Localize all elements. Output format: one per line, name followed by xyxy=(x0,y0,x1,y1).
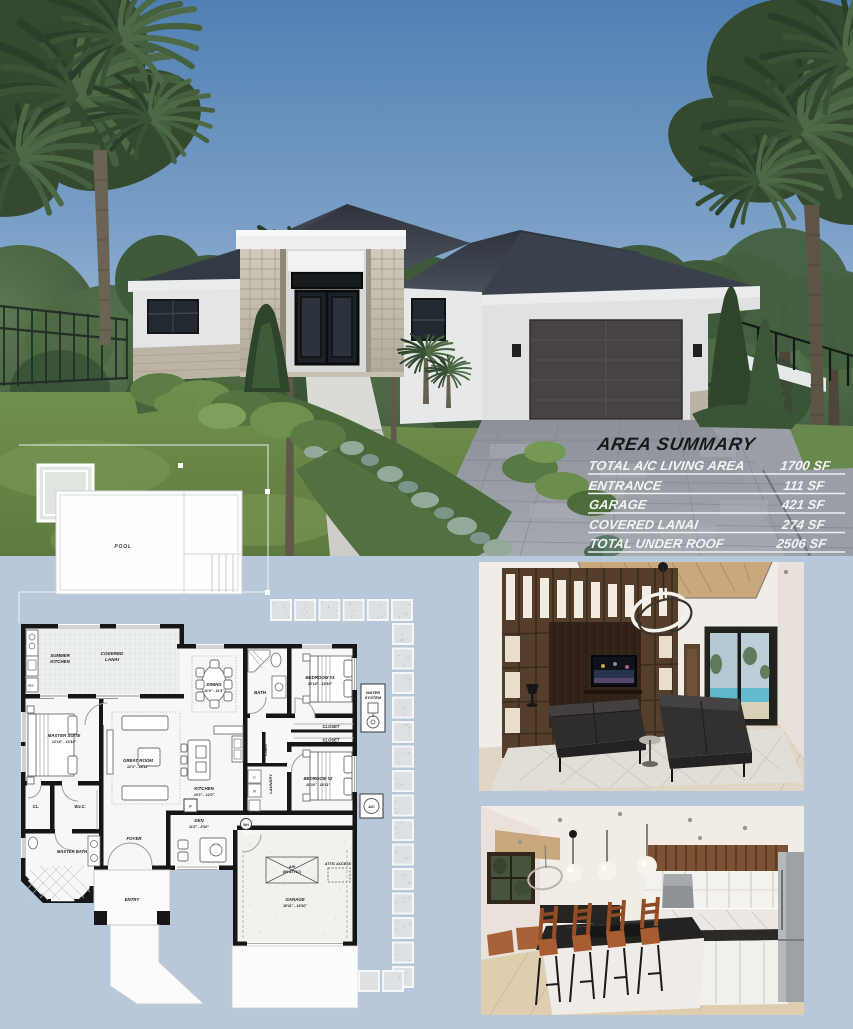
svg-text:KITCHEN: KITCHEN xyxy=(194,786,214,791)
svg-text:BEDROOM #2: BEDROOM #2 xyxy=(303,776,333,781)
svg-text:DINING: DINING xyxy=(206,682,222,687)
svg-text:KITCHEN: KITCHEN xyxy=(50,659,70,664)
svg-text:111 SF: 111 SF xyxy=(783,478,827,493)
svg-text:12'3" - 18'11": 12'3" - 18'11" xyxy=(127,765,149,769)
svg-text:(IN ATTIC): (IN ATTIC) xyxy=(283,870,302,874)
svg-text:LINEN: LINEN xyxy=(264,744,268,756)
svg-text:COVERED: COVERED xyxy=(101,651,124,656)
svg-text:POOL: POOL xyxy=(114,544,131,550)
svg-text:11'0" - 11'3": 11'0" - 11'3" xyxy=(204,689,224,693)
svg-text:TOTAL UNDER ROOF: TOTAL UNDER ROOF xyxy=(589,536,726,551)
svg-text:10'10" - 10'10": 10'10" - 10'10" xyxy=(308,682,333,686)
svg-text:11'2" - 8'10": 11'2" - 8'10" xyxy=(189,825,209,829)
svg-text:MASTER SUITE: MASTER SUITE xyxy=(48,733,82,738)
svg-text:ENTRANCE: ENTRANCE xyxy=(588,478,664,493)
svg-text:GARAGE: GARAGE xyxy=(588,497,649,512)
svg-text:CLOSET: CLOSET xyxy=(323,724,340,729)
svg-text:10'10" - 10'11": 10'10" - 10'11" xyxy=(306,783,330,787)
svg-text:ATTIC ACCESS: ATTIC ACCESS xyxy=(324,862,352,866)
svg-text:18'11" - 19'10": 18'11" - 19'10" xyxy=(283,904,307,908)
svg-text:AREA SUMMARY: AREA SUMMARY xyxy=(595,434,758,454)
svg-text:WH: WH xyxy=(243,823,249,827)
svg-text:W.I.C.: W.I.C. xyxy=(74,804,85,809)
svg-text:10'1" - 12'2": 10'1" - 12'2" xyxy=(194,793,215,797)
svg-text:GREAT ROOM: GREAT ROOM xyxy=(123,758,153,763)
svg-text:COVERED LANAI: COVERED LANAI xyxy=(588,517,699,532)
svg-text:ENTRY: ENTRY xyxy=(125,897,141,902)
svg-text:BATH: BATH xyxy=(254,690,267,695)
svg-text:1700 SF: 1700 SF xyxy=(780,458,833,473)
svg-text:SYSTEM: SYSTEM xyxy=(365,695,382,700)
svg-text:12'10" - 13'10": 12'10" - 13'10" xyxy=(52,740,77,744)
svg-text:LANAI: LANAI xyxy=(105,657,120,662)
svg-text:SUMMER: SUMMER xyxy=(50,653,70,658)
svg-text:2506 SF: 2506 SF xyxy=(775,536,829,551)
svg-text:CLOSET: CLOSET xyxy=(323,738,340,743)
svg-text:GARAGE: GARAGE xyxy=(285,897,305,902)
svg-text:274 SF: 274 SF xyxy=(780,517,826,532)
svg-text:CL.: CL. xyxy=(33,804,40,809)
svg-text:A/H: A/H xyxy=(288,865,296,869)
svg-text:DEN: DEN xyxy=(194,818,204,823)
svg-text:421 SF: 421 SF xyxy=(780,497,826,512)
svg-text:A/C: A/C xyxy=(368,805,375,809)
svg-text:TOTAL A/C LIVING AREA: TOTAL A/C LIVING AREA xyxy=(588,458,746,473)
svg-text:FOYER: FOYER xyxy=(126,836,142,841)
svg-text:LAUNDRY: LAUNDRY xyxy=(268,774,273,794)
svg-text:MASTER BATH: MASTER BATH xyxy=(57,849,88,854)
svg-text:BEDROOM #3: BEDROOM #3 xyxy=(305,675,335,680)
svg-text:REF.: REF. xyxy=(28,684,35,688)
